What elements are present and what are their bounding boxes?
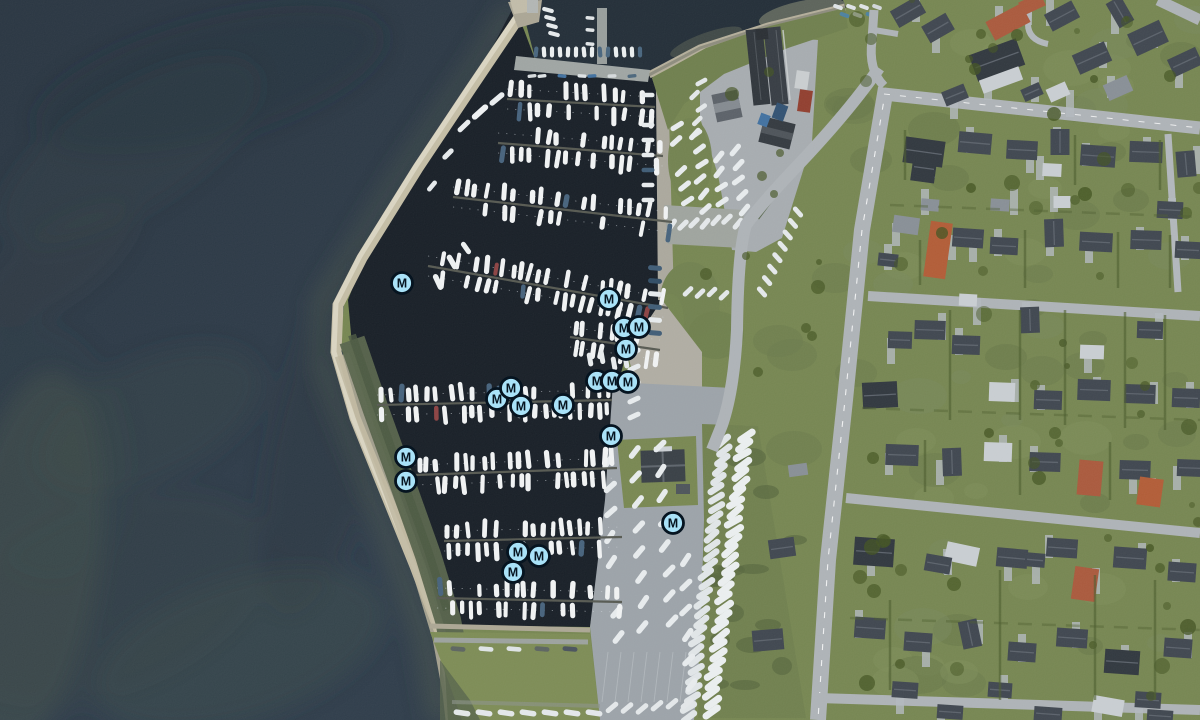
svg-text:M: M	[604, 293, 614, 307]
svg-text:M: M	[397, 277, 407, 291]
svg-text:M: M	[508, 566, 518, 580]
svg-text:M: M	[668, 517, 678, 531]
svg-text:M: M	[607, 375, 617, 389]
svg-text:M: M	[634, 321, 644, 335]
svg-text:M: M	[621, 343, 631, 357]
svg-text:M: M	[492, 393, 502, 407]
svg-text:M: M	[558, 399, 568, 413]
svg-text:M: M	[401, 475, 411, 489]
svg-text:M: M	[401, 451, 411, 465]
svg-text:M: M	[506, 382, 516, 396]
svg-text:M: M	[513, 546, 523, 560]
svg-text:M: M	[606, 430, 616, 444]
svg-text:M: M	[516, 400, 526, 414]
svg-text:M: M	[534, 550, 544, 564]
svg-text:M: M	[623, 376, 633, 390]
